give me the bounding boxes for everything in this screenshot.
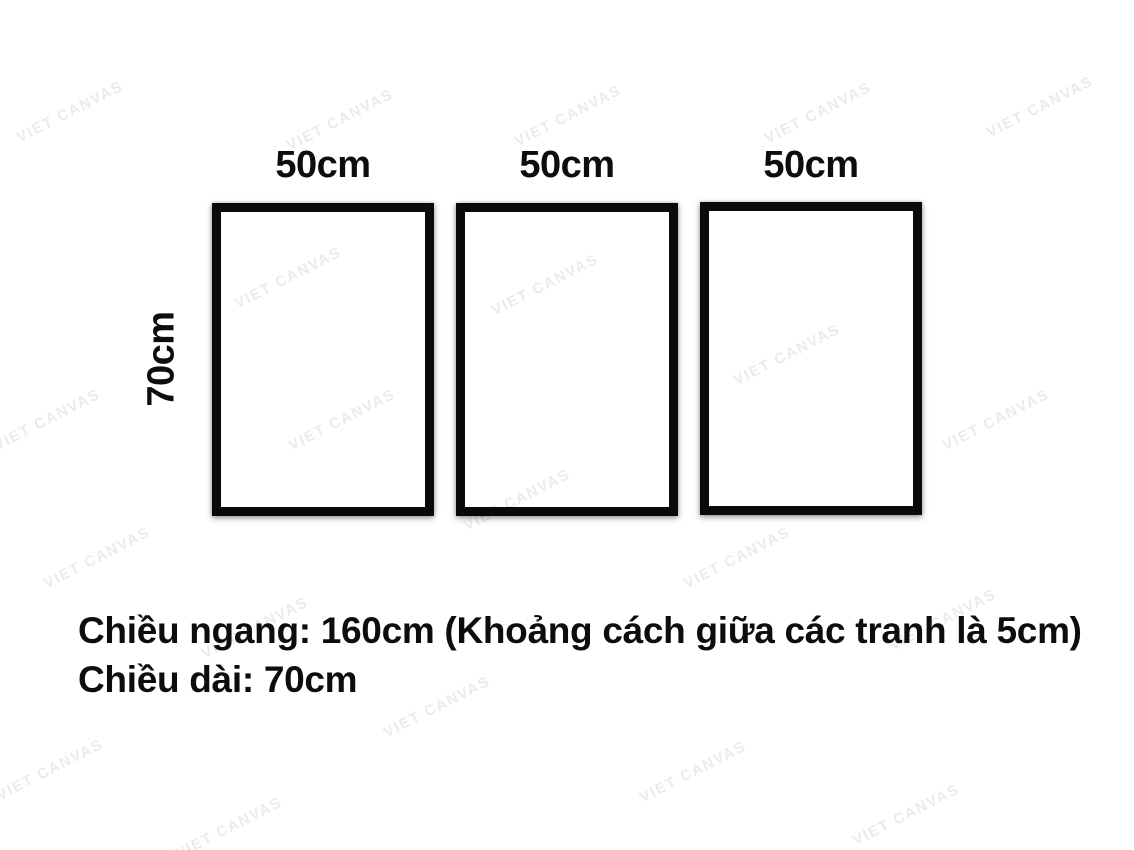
frame-2-width-label: 50cm bbox=[456, 144, 678, 187]
watermark-text: VIET CANVAS bbox=[681, 524, 793, 592]
watermark-text: VIET CANVAS bbox=[41, 524, 153, 592]
frame-3-width-label: 50cm bbox=[700, 144, 922, 187]
watermark-text: VIET CANVAS bbox=[512, 82, 624, 150]
canvas-size-diagram: VIET CANVAS VIET CANVAS VIET CANVAS VIET… bbox=[0, 0, 1134, 850]
watermark-text: VIET CANVAS bbox=[637, 738, 749, 806]
watermark-text: VIET CANVAS bbox=[762, 79, 874, 147]
watermark-text: VIET CANVAS bbox=[850, 781, 962, 849]
watermark-text: VIET CANVAS bbox=[984, 73, 1096, 141]
picture-frame-1 bbox=[212, 203, 434, 516]
watermark-text: VIET CANVAS bbox=[14, 78, 126, 146]
watermark-text: VIET CANVAS bbox=[173, 794, 285, 850]
watermark-text: VIET CANVAS bbox=[940, 386, 1052, 454]
watermark-text: VIET CANVAS bbox=[0, 386, 103, 454]
frame-height-label: 70cm bbox=[141, 311, 184, 406]
caption-line-vertical: Chiều dài: 70cm bbox=[78, 655, 1082, 704]
frame-1-width-label: 50cm bbox=[212, 144, 434, 187]
watermark-text: VIET CANVAS bbox=[0, 736, 106, 804]
picture-frame-3 bbox=[700, 202, 922, 515]
picture-frame-2 bbox=[456, 203, 678, 516]
caption-line-horizontal: Chiều ngang: 160cm (Khoảng cách giữa các… bbox=[78, 606, 1082, 655]
dimension-caption: Chiều ngang: 160cm (Khoảng cách giữa các… bbox=[78, 606, 1082, 704]
